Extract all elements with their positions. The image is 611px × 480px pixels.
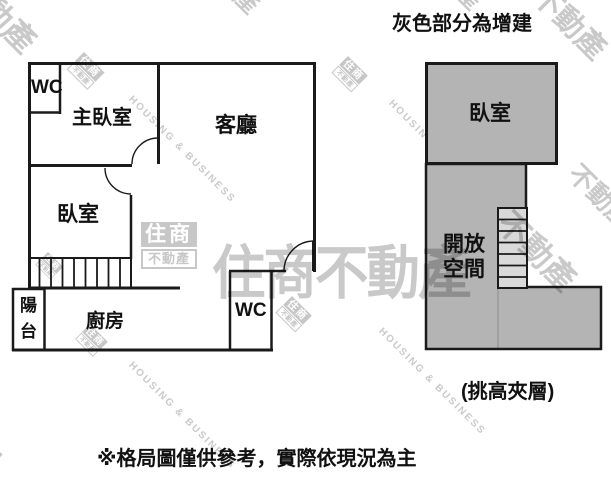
room-label-addition-bedroom: 臥室 <box>469 102 511 126</box>
door-arc-entry <box>284 241 314 271</box>
room-label-bedroom: 臥室 <box>57 203 99 227</box>
brand-logo-cn: 住商 <box>0 438 3 462</box>
wall-wc-bottom <box>229 271 286 351</box>
brand-logo-watermark: 住商 不動產 <box>35 252 63 280</box>
brand-logo-sub: 不動產 <box>75 333 99 357</box>
room-label-open-space: 開放空間 <box>443 233 489 283</box>
room-label-living-room: 客廳 <box>215 114 257 138</box>
brand-logo-cn: 住商 <box>339 56 368 85</box>
brand-en-watermark: HOUSING & BUSINESS <box>376 326 487 437</box>
disclaimer-text: ※格局圖僅供參考，實際依現況為主 <box>97 448 416 471</box>
room-label-master-bedroom: 主臥室 <box>72 107 132 130</box>
addition-note: 灰色部分為增建 <box>392 13 532 36</box>
brand-logo-sub: 不動產 <box>67 62 95 90</box>
brand-watermark-fragment: 產 <box>228 0 263 19</box>
brand-logo-sub: 不動產 <box>35 259 55 279</box>
brand-watermark-fragment: 不動產 <box>526 0 611 66</box>
ladder-stairs <box>498 208 527 288</box>
brand-en-watermark: HOUSING & BUSINESS <box>386 98 497 209</box>
brand-logo-watermark: 住商 不動產 <box>67 52 105 90</box>
floorplan-right <box>426 64 601 350</box>
mezzanine-note: (挑高夾層) <box>461 381 554 404</box>
brand-logo-sub: 不動產 <box>275 306 302 333</box>
window-hatch-band <box>28 258 132 288</box>
brand-en-watermark: HOUSING & BUSINESS <box>126 360 237 471</box>
wall-balcony <box>12 288 45 351</box>
brand-logo-cn: 住商 <box>75 52 105 82</box>
brand-logo-cn: 住商 <box>141 222 197 247</box>
wall-wc-top <box>28 62 61 114</box>
floorplan-image: 不動產 產 產 不動產 不動產 HOUSING & BUSINESS HOUSI… <box>0 0 611 480</box>
brand-watermark-fragment: 不動產 <box>563 160 611 234</box>
brand-watermark-fragment: 不動產 <box>490 206 582 298</box>
brand-logo-sub: 不動產 <box>331 66 358 93</box>
brand-watermark-fragment: 不動產 <box>0 0 42 60</box>
addition-bedroom-area <box>427 64 557 164</box>
open-space-area <box>426 164 601 349</box>
brand-logo-watermark: 住商 不動產 <box>331 56 367 92</box>
brand-logo-cn: 住商 <box>82 324 108 350</box>
watermark-under-layer: 不動產 產 產 不動產 不動產 HOUSING & BUSINESS HOUSI… <box>0 0 611 480</box>
brand-watermark-fragment: 產 <box>450 0 485 15</box>
brand-logo-cn: 住商 <box>283 296 312 325</box>
room-label-kitchen: 廚房 <box>86 311 124 333</box>
floorplan-drawing <box>0 0 611 480</box>
brand-logo-watermark: 住商 不動產 <box>275 296 311 332</box>
brand-watermark-large: 住商不動產 <box>212 226 470 310</box>
brand-logo-watermark: 住商 不動產 <box>0 438 3 469</box>
door-arc-bedroom <box>105 168 131 194</box>
floorplan-left <box>12 62 316 351</box>
watermark-over-layer: 住商 不動產 住商不動產 不動產 <box>0 0 611 480</box>
room-label-wc-bottom: WC <box>235 300 267 322</box>
door-arc-master <box>132 138 158 164</box>
brand-logo-cn: 住商 <box>41 252 63 274</box>
room-label-balcony: 陽台 <box>20 293 38 346</box>
brand-logo-sub: 不動產 <box>141 249 197 269</box>
brand-logo-watermark-center: 住商 不動產 <box>141 222 197 269</box>
label-layer: 灰色部分為增建 (挑高夾層) ※格局圖僅供參考，實際依現況為主 WC 主臥室 客… <box>0 0 611 480</box>
brand-logo-watermark: 住商 不動產 <box>75 324 108 357</box>
room-label-wc-top: WC <box>31 77 63 99</box>
brand-en-watermark: HOUSING & BUSINESS <box>126 94 237 205</box>
